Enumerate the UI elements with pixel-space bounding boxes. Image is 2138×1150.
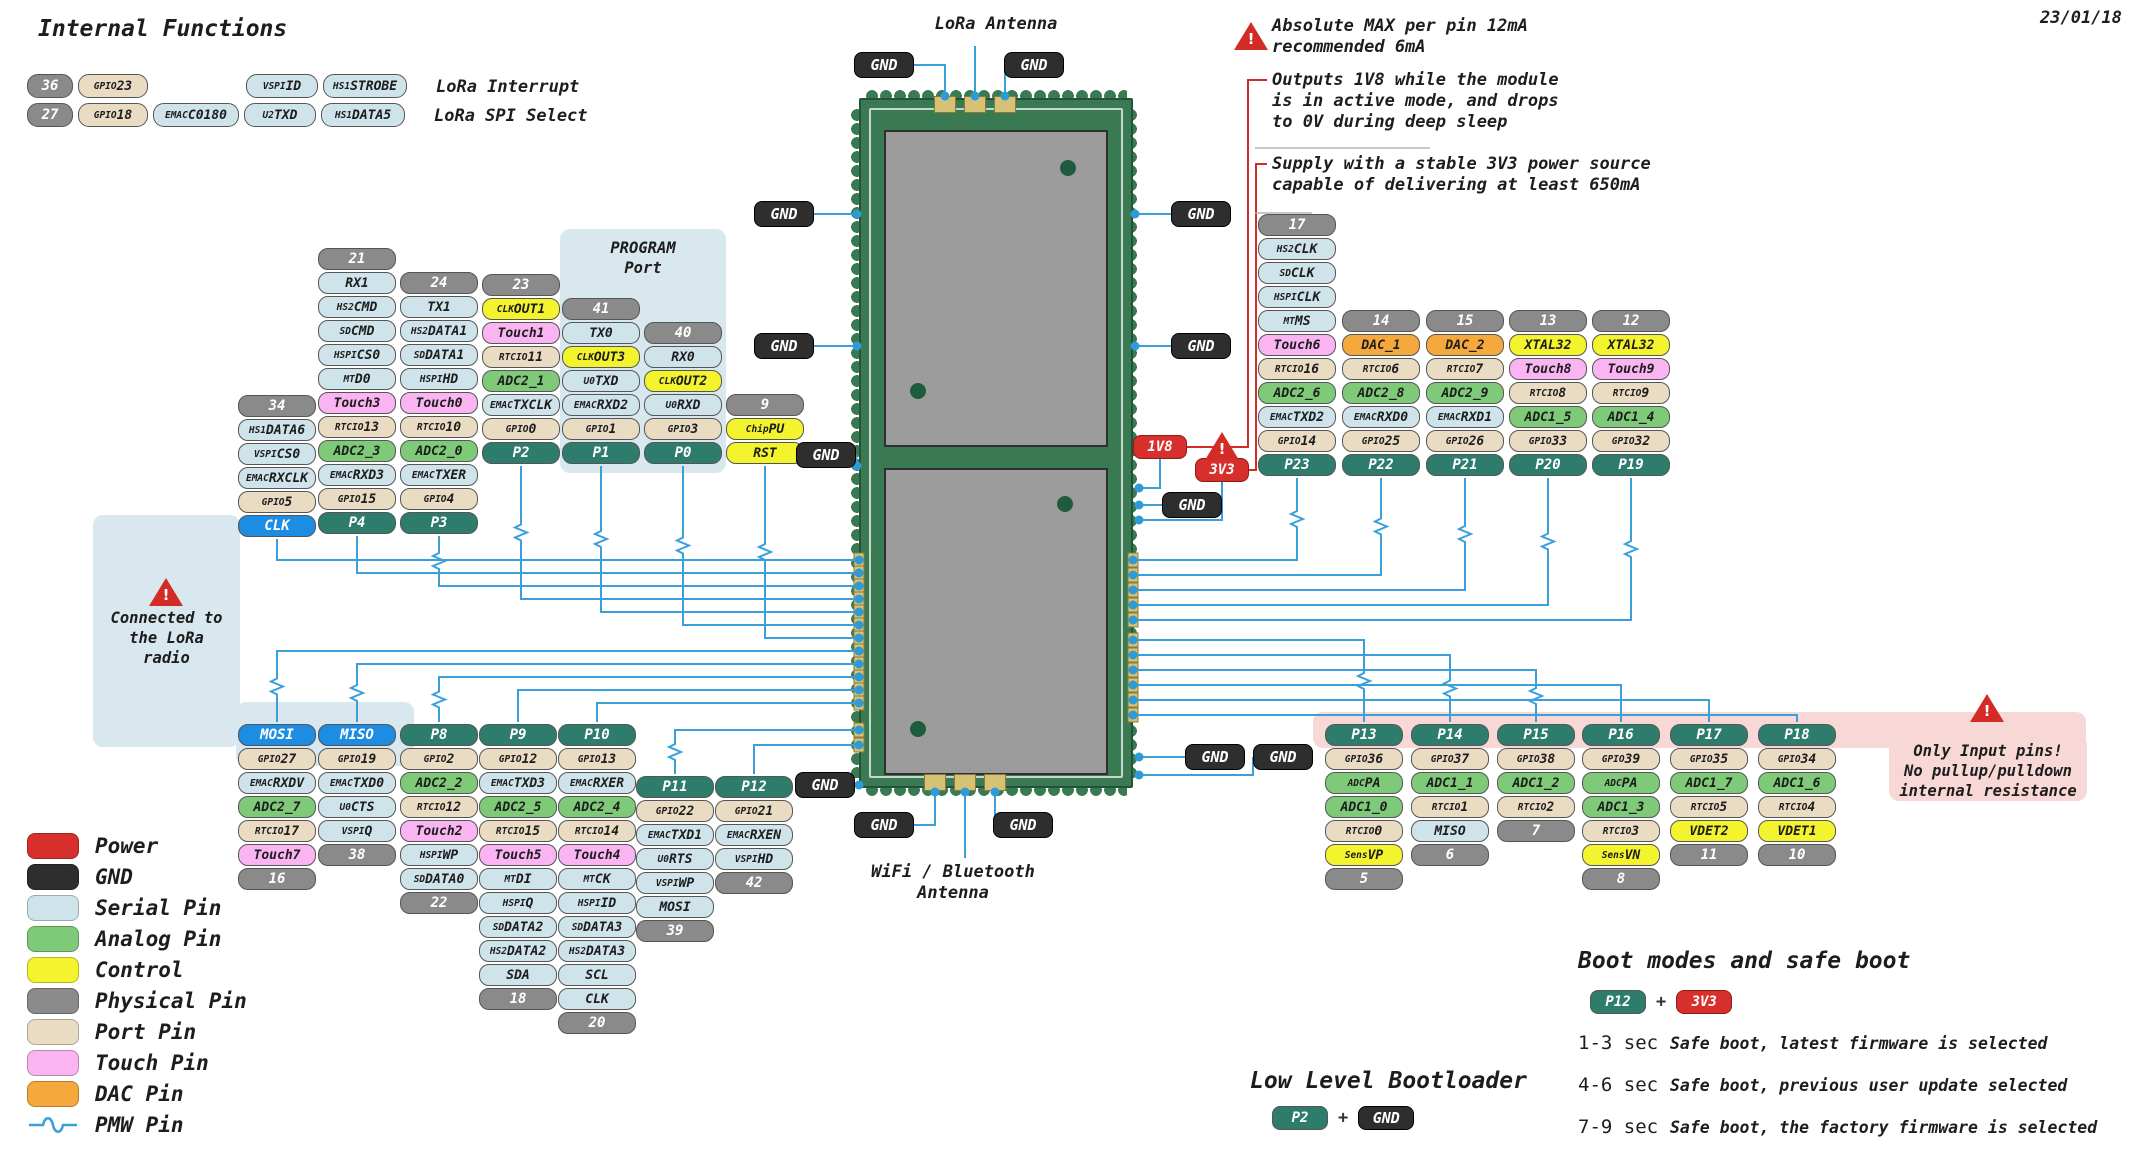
pin-pill-adc2_0: ADC2_0 [400,440,478,462]
pin-pill-clkout1: CLKOUT1 [482,298,560,320]
pin-pill-touch9: Touch9 [1592,358,1670,380]
pin-pill-clkout2: CLKOUT2 [644,370,722,392]
pin-pill-u0rts: U0RTS [636,848,714,870]
pin-pill-23: 23 [482,274,560,296]
pmw-wave-icon [27,1112,79,1138]
pin-pill-gnd: GND [1358,1106,1414,1130]
abs-max-annotation: Absolute MAX per pin 12mA recommended 6m… [1272,16,1528,58]
pin-pill-rtcio12: RTCIO12 [400,796,478,818]
pin-pill-vspiwp: VSPIWP [636,872,714,894]
pin-pill-u0cts: U0CTS [318,796,396,818]
pin-pill-rtcio9: RTCIO9 [1592,382,1670,404]
pin-pill-gpio15: GPIO15 [318,488,396,510]
pin-pill-adc1_5: ADC1_5 [1509,406,1587,428]
legend-label: DAC Pin [95,1082,184,1106]
pin-pill-p2: P2 [1272,1106,1328,1130]
pin-pill-3v3: 3V3 [1676,990,1732,1014]
pin-pill-adc2_2: ADC2_2 [400,772,478,794]
pin-pill-emactxer: EMACTXER [400,464,478,486]
pin-column-p12: P12GPIO21EMACRXENVSPIHD42 [715,776,793,896]
pin-column-41: 41TX0CLKOUT3U0TXDEMACRXD2GPIO1P1 [562,298,640,466]
pin-pill-p11: P11 [636,776,714,798]
legend-swatch [27,1050,79,1076]
pin-pill-p9: P9 [479,724,557,746]
wifi-antenna-label: WiFi / Bluetooth Antenna [816,862,1090,904]
pin-pill-p4: P4 [318,512,396,534]
boot-desc: Safe boot, previous user update selected [1670,1076,2067,1095]
pin-column-14: 14DAC_1RTCIO6ADC2_8EMACRXD0GPIO25P22 [1342,310,1420,478]
pin-pill-touch8: Touch8 [1509,358,1587,380]
pin-pill-hs1strobe: HS1STROBE [323,74,407,98]
legend-label: Power [95,834,158,858]
pin-pill-emacrxen: EMACRXEN [715,824,793,846]
pin-pill-rtcio4: RTCIO4 [1758,796,1836,818]
pin-pill-sdclk: SDCLK [1258,262,1336,284]
pin-pill-5: 5 [1325,868,1403,890]
pin-pill-6: 6 [1411,844,1489,866]
pin-pill-dac_1: DAC_1 [1342,334,1420,356]
legend-item-touch-pin: Touch Pin [27,1050,247,1076]
pin-pill-gpio22: GPIO22 [636,800,714,822]
pin-pill-sddata0: SDDATA0 [400,868,478,890]
bootloader: Low Level Bootloader P2+GND [1250,1068,1527,1130]
pin-pill-adc2_5: ADC2_5 [479,796,557,818]
pin-pill-hspiq: HSPIQ [479,892,557,914]
pin-pill-sda: SDA [479,964,557,986]
pin-pill-touch2: Touch2 [400,820,478,842]
pin-pill-gpio1: GPIO1 [562,418,640,440]
pin-pill-touch4: Touch4 [558,844,636,866]
pin-pill-22: 22 [400,892,478,914]
pin-pill-emacrxclk: EMACRXCLK [238,467,316,489]
legend-item-gnd: GND [27,864,247,890]
pin-pill-13: 13 [1509,310,1587,332]
legend-label: Analog Pin [95,927,221,951]
pin-pill-vdet1: VDET1 [1758,820,1836,842]
pin-pill-vspiid: VSPIID [246,74,318,98]
pin-pill-rtcio2: RTCIO2 [1497,796,1575,818]
pin-pill-rtcio13: RTCIO13 [318,416,396,438]
legend-label: Port Pin [95,1020,196,1044]
pin-pill-adc1_4: ADC1_4 [1592,406,1670,428]
power-pill-3v3: 3V3 [1195,458,1249,482]
pin-pill-hs2data3: HS2DATA3 [558,940,636,962]
pin-pill-20: 20 [558,1012,636,1034]
pin-pill-hspiwp: HSPIWP [400,844,478,866]
pin-column-p13: P13GPIO36ADCPAADC1_0RTCIO0SensVP5 [1325,724,1403,892]
supply-3v3-annotation: Supply with a stable 3V3 power source ca… [1272,154,1651,196]
pin-column-p14: P14GPIO37ADC1_1RTCIO1MISO6 [1411,724,1489,868]
pin-pill-hs2data2: HS2DATA2 [479,940,557,962]
pin-pill-mosi: MOSI [636,896,714,918]
legend-label: Physical Pin [95,989,247,1013]
pin-pill-p13: P13 [1325,724,1403,746]
pin-pill-p1: P1 [562,442,640,464]
legend-swatch [27,895,79,921]
boot-time: 7-9 sec [1578,1116,1670,1138]
pin-pill-touch5: Touch5 [479,844,557,866]
pin-pill-rtcio8: RTCIO8 [1509,382,1587,404]
lora-antenna-label: LoRa Antenna [859,14,1133,35]
pin-pill-emacrxer: EMACRXER [558,772,636,794]
legend-item-power: Power [27,833,247,859]
pin-pill-gpio0: GPIO0 [482,418,560,440]
pin-pill-adc2_7: ADC2_7 [238,796,316,818]
plus-sign: + [1338,1108,1348,1128]
pin-pill-xtal32: XTAL32 [1592,334,1670,356]
pin-column-p18: P18GPIO34ADC1_6RTCIO4VDET110 [1758,724,1836,868]
internal-functions-note: LoRa Interrupt [436,77,579,98]
pin-pill-27: 27 [27,103,73,127]
pin-pill-rx0: RX0 [644,346,722,368]
pin-pill-adc2_6: ADC2_6 [1258,382,1336,404]
pin-column-34: 34HS1DATA6VSPICS0EMACRXCLKGPIO5CLK [238,395,316,539]
pin-pill-7: 7 [1497,820,1575,842]
legend-label: Serial Pin [95,896,221,920]
pin-pill-gpio12: GPIO12 [479,748,557,770]
pin-column-p16: P16GPIO39ADCPAADC1_3RTCIO3SensVN8 [1582,724,1660,892]
bootloader-combo: P2+GND [1272,1106,1527,1130]
pin-pill-rx1: RX1 [318,272,396,294]
pin-pill-u0txd: U0TXD [562,370,640,392]
pin-pill-gpio21: GPIO21 [715,800,793,822]
pin-pill-p17: P17 [1670,724,1748,746]
pin-pill-adc1_1: ADC1_1 [1411,772,1489,794]
pin-pill-hs1data6: HS1DATA6 [238,419,316,441]
pin-pill-gpio25: GPIO25 [1342,430,1420,452]
pin-pill-hspihd: HSPIHD [400,368,478,390]
pin-pill-touch0: Touch0 [400,392,478,414]
pin-pill-rtcio10: RTCIO10 [400,416,478,438]
pin-pill-gpio39: GPIO39 [1582,748,1660,770]
pin-pill-scl: SCL [558,964,636,986]
pin-pill-adc1_2: ADC1_2 [1497,772,1575,794]
pin-pill-emactxd3: EMACTXD3 [479,772,557,794]
pin-pill-hspics0: HSPICS0 [318,344,396,366]
pin-pill-p20: P20 [1509,454,1587,476]
pin-pill-adc2_8: ADC2_8 [1342,382,1420,404]
legend-swatch [27,988,79,1014]
pin-pill-16: 16 [238,868,316,890]
pin-pill-mtd0: MTD0 [318,368,396,390]
legend-swatch [27,957,79,983]
pin-pill-gpio13: GPIO13 [558,748,636,770]
pin-pill-mtck: MTCK [558,868,636,890]
pin-pill-8: 8 [1582,868,1660,890]
boot-rows: 1-3 secSafe boot, latest firmware is sel… [1578,1032,2097,1138]
pin-pill-11: 11 [1670,844,1748,866]
pin-pill-41: 41 [562,298,640,320]
boot-desc: Safe boot, the factory firmware is selec… [1670,1118,2097,1137]
pin-pill-12: 12 [1592,310,1670,332]
pin-column-13: 13XTAL32Touch8RTCIO8ADC1_5GPIO33P20 [1509,310,1587,478]
pin-pill-p23: P23 [1258,454,1336,476]
pin-pill-hs2data1: HS2DATA1 [400,320,478,342]
pin-pill-adc2_4: ADC2_4 [558,796,636,818]
pin-pill-touch1: Touch1 [482,322,560,344]
pin-pill-p18: P18 [1758,724,1836,746]
pin-column-12: 12XTAL32Touch9RTCIO9ADC1_4GPIO32P19 [1592,310,1670,478]
pin-pill-34: 34 [238,395,316,417]
pin-pill-p22: P22 [1342,454,1420,476]
pin-pill-gpio27: GPIO27 [238,748,316,770]
pin-pill-p14: P14 [1411,724,1489,746]
outputs-1v8-annotation: Outputs 1V8 while the module is in activ… [1272,70,1559,133]
pin-pill-p15: P15 [1497,724,1575,746]
date-label: 23/01/18 [2040,8,2122,29]
pin-pill-emacrxdv: EMACRXDV [238,772,316,794]
pin-pill-rst: RST [726,442,804,464]
legend-item-port-pin: Port Pin [27,1019,247,1045]
only-input-note: Only Input pins! No pullup/pulldown inte… [1889,741,2087,801]
pin-pill-adc1_3: ADC1_3 [1582,796,1660,818]
pin-pill-dac_2: DAC_2 [1426,334,1504,356]
pin-column-17: 17HS2CLKSDCLKHSPICLKMTMSTouch6RTCIO16ADC… [1258,214,1336,478]
pin-pill-mosi: MOSI [238,724,316,746]
pin-column-15: 15DAC_2RTCIO7ADC2_9EMACRXD1GPIO26P21 [1426,310,1504,478]
pin-column-p10: P10GPIO13EMACRXERADC2_4RTCIO14Touch4MTCK… [558,724,636,1036]
pin-pill-gpio38: GPIO38 [1497,748,1575,770]
pin-column-mosi: MOSIGPIO27EMACRXDVADC2_7RTCIO17Touch716 [238,724,316,892]
pin-pill-sddata1: SDDATA1 [400,344,478,366]
pin-pill-gnd: GND [1171,201,1231,227]
pin-pill-rtcio0: RTCIO0 [1325,820,1403,842]
pin-pill-u0rxd: U0RXD [644,394,722,416]
legend-item-dac-pin: DAC Pin [27,1081,247,1107]
pin-pill-gnd: GND [754,333,814,359]
pin-pill-vspics0: VSPICS0 [238,443,316,465]
pin-pill-gnd: GND [993,812,1053,838]
pin-pill-gnd: GND [796,442,856,468]
pin-pill-emactxd2: EMACTXD2 [1258,406,1336,428]
internal-functions-note: LoRa SPI Select [434,106,588,127]
boot-time: 4-6 sec [1578,1074,1670,1096]
pin-pill-gpio18: GPIO18 [78,103,148,127]
pin-pill-gpio23: GPIO23 [78,74,148,98]
pin-pill-rtcio16: RTCIO16 [1258,358,1336,380]
pin-pill-gpio37: GPIO37 [1411,748,1489,770]
pin-pill-rtcio6: RTCIO6 [1342,358,1420,380]
pin-pill-40: 40 [644,322,722,344]
legend-item-pmw-pin: PMW Pin [27,1112,247,1138]
pin-pill-gpio35: GPIO35 [1670,748,1748,770]
pin-pill-gpio5: GPIO5 [238,491,316,513]
pin-pill-hspiclk: HSPICLK [1258,286,1336,308]
pin-column-p17: P17GPIO35ADC1_7RTCIO5VDET211 [1670,724,1748,868]
pin-column-p15: P15GPIO38ADC1_2RTCIO27 [1497,724,1575,844]
pin-pill-p3: P3 [400,512,478,534]
pin-pill-38: 38 [318,844,396,866]
plus-sign: + [1656,992,1666,1012]
pin-pill-sensvn: SensVN [1582,844,1660,866]
legend: PowerGNDSerial PinAnalog PinControlPhysi… [27,833,247,1143]
pin-pill-gpio34: GPIO34 [1758,748,1836,770]
pin-pill-rtcio5: RTCIO5 [1670,796,1748,818]
pin-pill-clk: CLK [238,515,316,537]
pin-pill-rtcio3: RTCIO3 [1582,820,1660,842]
pin-pill-24: 24 [400,272,478,294]
pin-pill-emactxd1: EMACTXD1 [636,824,714,846]
pin-pill-15: 15 [1426,310,1504,332]
pin-pill-tx0: TX0 [562,322,640,344]
boot-combo: P12+3V3 [1590,990,2097,1014]
pin-pill-touch6: Touch6 [1258,334,1336,356]
pin-pill-p19: P19 [1592,454,1670,476]
pin-pill-p12: P12 [715,776,793,798]
pin-column-40: 40RX0CLKOUT2U0RXDGPIO3P0 [644,322,722,466]
pin-pill-gnd: GND [1185,744,1245,770]
legend-label: Touch Pin [95,1051,209,1075]
legend-label: PMW Pin [95,1113,184,1137]
pin-pill-gpio26: GPIO26 [1426,430,1504,452]
pin-pill-emacrxd2: EMACRXD2 [562,394,640,416]
pin-pill-p12: P12 [1590,990,1646,1014]
boot-modes-title: Boot modes and safe boot [1578,948,2097,974]
pin-pill-chippu: ChipPU [726,418,804,440]
pin-pill-xtal32: XTAL32 [1509,334,1587,356]
pin-pill-39: 39 [636,920,714,942]
internal-functions-title: Internal Functions [38,16,287,42]
legend-swatch [27,1081,79,1107]
pin-pill-adc1_6: ADC1_6 [1758,772,1836,794]
legend-swatch [27,926,79,952]
pin-pill-miso: MISO [1411,820,1489,842]
pin-pill-p2: P2 [482,442,560,464]
pin-pill-p0: P0 [644,442,722,464]
pin-pill-gnd: GND [795,772,855,798]
pin-pill-rtcio7: RTCIO7 [1426,358,1504,380]
legend-item-serial-pin: Serial Pin [27,895,247,921]
pin-column-23: 23CLKOUT1Touch1RTCIO11ADC2_1EMACTXCLKGPI… [482,274,560,466]
pin-pill-adc2_9: ADC2_9 [1426,382,1504,404]
pin-pill-rtcio15: RTCIO15 [479,820,557,842]
pin-pill-42: 42 [715,872,793,894]
pin-pill-p8: P8 [400,724,478,746]
pin-pill-clk: CLK [558,988,636,1010]
program-port-label: PROGRAM Port [560,238,726,278]
pin-pill-mtdi: MTDI [479,868,557,890]
pin-pill-adcpa: ADCPA [1325,772,1403,794]
bootloader-title: Low Level Bootloader [1250,1068,1527,1094]
legend-swatch [27,1019,79,1045]
pin-column-p8: P8GPIO2ADC2_2RTCIO12Touch2HSPIWPSDDATA02… [400,724,478,916]
legend-item-analog-pin: Analog Pin [27,926,247,952]
boot-mode-row: 1-3 secSafe boot, latest firmware is sel… [1578,1032,2097,1054]
pin-pill-gnd: GND [854,812,914,838]
boot-modes: Boot modes and safe boot P12+3V3 1-3 sec… [1578,948,2097,1150]
pin-pill-gpio19: GPIO19 [318,748,396,770]
pin-pill-hspiid: HSPIID [558,892,636,914]
pin-pill-p21: P21 [1426,454,1504,476]
pin-pill-rtcio1: RTCIO1 [1411,796,1489,818]
pin-pill-gpio2: GPIO2 [400,748,478,770]
pin-pill-tx1: TX1 [400,296,478,318]
pin-pill-clkout3: CLKOUT3 [562,346,640,368]
pin-pill-p16: P16 [1582,724,1660,746]
pin-pill-gpio36: GPIO36 [1325,748,1403,770]
pin-pill-9: 9 [726,394,804,416]
pin-pill-gpio14: GPIO14 [1258,430,1336,452]
boot-desc: Safe boot, latest firmware is selected [1670,1034,2048,1053]
pin-pill-emacc0180: EMACC0180 [153,103,239,127]
pin-pill-touch7: Touch7 [238,844,316,866]
pin-pill-emactxd0: EMACTXD0 [318,772,396,794]
power-pill-1v8: 1V8 [1133,435,1187,459]
pin-pill-14: 14 [1342,310,1420,332]
pin-column-9: 9ChipPURST [726,394,804,466]
pin-pill-sdcmd: SDCMD [318,320,396,342]
pin-pill-18: 18 [479,988,557,1010]
pin-pill-emacrxd1: EMACRXD1 [1426,406,1504,428]
pin-pill-10: 10 [1758,844,1836,866]
pin-column-24: 24TX1HS2DATA1SDDATA1HSPIHDTouch0RTCIO10A… [400,272,478,536]
pin-pill-rtcio14: RTCIO14 [558,820,636,842]
pin-pill-gpio3: GPIO3 [644,418,722,440]
pin-pill-adc1_0: ADC1_0 [1325,796,1403,818]
pin-pill-sensvp: SensVP [1325,844,1403,866]
boot-mode-row: 7-9 secSafe boot, the factory firmware i… [1578,1116,2097,1138]
pin-column-miso: MISOGPIO19EMACTXD0U0CTSVSPIQ38 [318,724,396,868]
lora-radio-note: Connected to the LoRa radio [93,608,240,668]
pin-pill-17: 17 [1258,214,1336,236]
pin-pill-gnd: GND [1004,52,1064,78]
pin-pill-vdet2: VDET2 [1670,820,1748,842]
legend-label: Control [95,958,184,982]
internal-functions-row: 27GPIO18EMACC0180U2TXDHS1DATA5LoRa SPI S… [27,103,588,129]
internal-functions-rows: 36GPIO23VSPIIDHS1STROBELoRa Interrupt27G… [27,74,588,132]
pin-column-21: 21RX1HS2CMDSDCMDHSPICS0MTD0Touch3RTCIO13… [318,248,396,536]
pin-pill-adcpa: ADCPA [1582,772,1660,794]
pin-pill-emactxclk: EMACTXCLK [482,394,560,416]
pin-pill-gnd: GND [754,201,814,227]
pin-pill-gnd: GND [1253,744,1313,770]
pin-pill-21: 21 [318,248,396,270]
pin-pill-vspihd: VSPIHD [715,848,793,870]
pin-pill-p10: P10 [558,724,636,746]
pin-pill-touch3: Touch3 [318,392,396,414]
legend-item-control: Control [27,957,247,983]
pin-pill-36: 36 [27,74,73,98]
pin-pill-hs1data5: HS1DATA5 [321,103,405,127]
pin-pill-vspiq: VSPIQ [318,820,396,842]
pin-pill-spacer [153,74,241,98]
legend-swatch [27,864,79,890]
pin-pill-adc2_3: ADC2_3 [318,440,396,462]
pin-pill-gpio4: GPIO4 [400,488,478,510]
pin-pill-mtms: MTMS [1258,310,1336,332]
pin-pill-hs2cmd: HS2CMD [318,296,396,318]
pin-pill-hs2clk: HS2CLK [1258,238,1336,260]
pinout-diagram: Internal Functions 36GPIO23VSPIIDHS1STRO… [0,0,2138,1150]
legend-item-physical-pin: Physical Pin [27,988,247,1014]
pin-pill-sddata2: SDDATA2 [479,916,557,938]
pin-pill-emacrxd3: EMACRXD3 [318,464,396,486]
boot-mode-row: 4-6 secSafe boot, previous user update s… [1578,1074,2097,1096]
pin-pill-gnd: GND [1171,333,1231,359]
pin-pill-miso: MISO [318,724,396,746]
pin-pill-adc1_7: ADC1_7 [1670,772,1748,794]
pin-pill-sddata3: SDDATA3 [558,916,636,938]
pin-column-p11: P11GPIO22EMACTXD1U0RTSVSPIWPMOSI39 [636,776,714,944]
pin-column-p9: P9GPIO12EMACTXD3ADC2_5RTCIO15Touch5MTDIH… [479,724,557,1012]
pin-pill-gpio32: GPIO32 [1592,430,1670,452]
pin-pill-u2txd: U2TXD [244,103,316,127]
legend-label: GND [95,865,133,889]
pin-pill-rtcio11: RTCIO11 [482,346,560,368]
boot-time: 1-3 sec [1578,1032,1670,1054]
pin-pill-rtcio17: RTCIO17 [238,820,316,842]
internal-functions-row: 36GPIO23VSPIIDHS1STROBELoRa Interrupt [27,74,588,100]
